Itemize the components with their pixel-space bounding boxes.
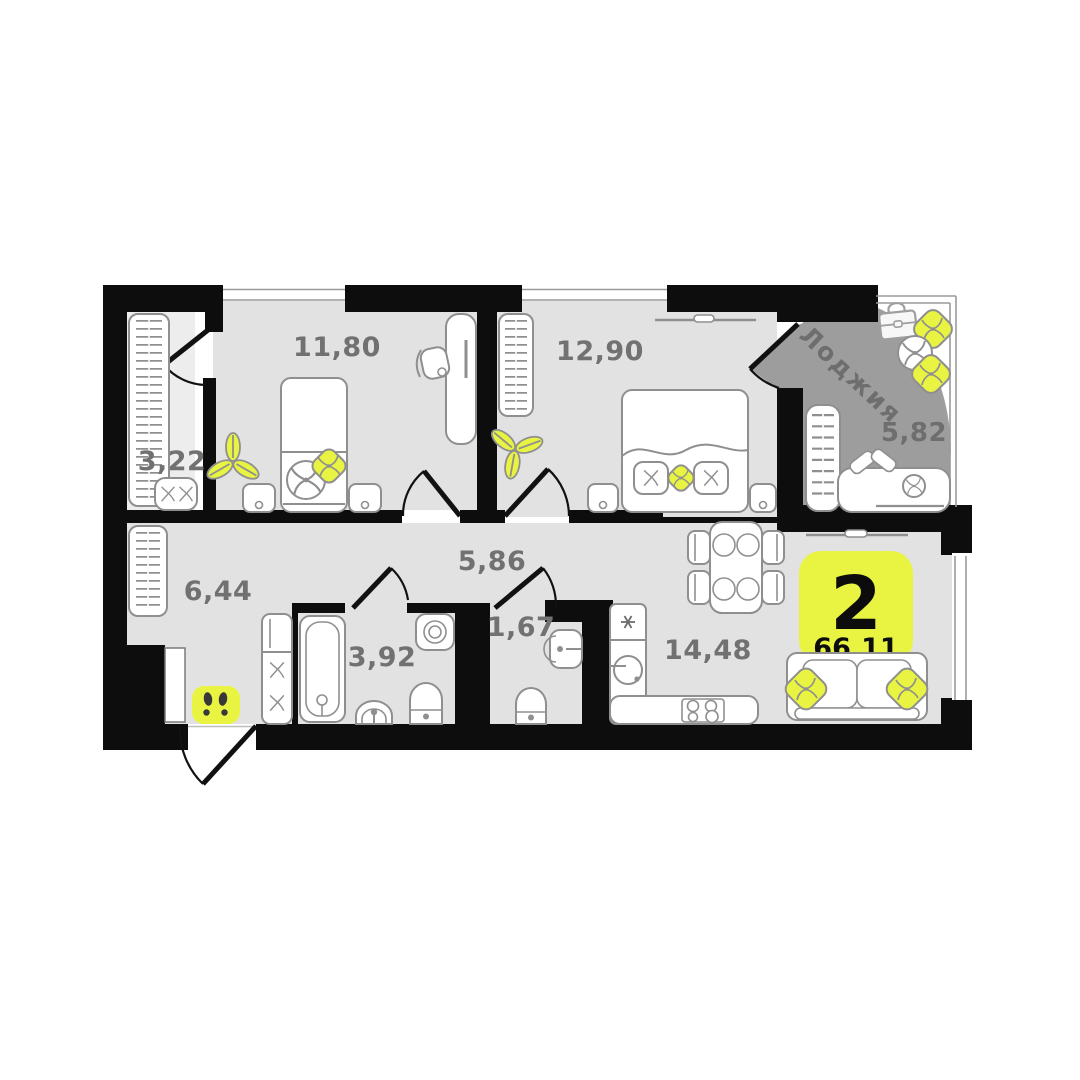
- single-bed-icon: [281, 378, 349, 512]
- nightstand-icon: [588, 484, 618, 512]
- dining-chair-icon: [688, 571, 710, 604]
- bathtub-icon: [300, 616, 345, 722]
- window-bedroom2: [522, 285, 667, 301]
- window-living: [952, 553, 974, 700]
- nightstand-icon: [349, 484, 381, 512]
- wall-bath-top-right: [407, 603, 455, 613]
- wall-loggia-divider: [777, 388, 803, 505]
- wardrobe-icon-bedroom2: [499, 314, 533, 416]
- wall-bottom-left: [103, 724, 188, 750]
- area-label-closet: 3,22: [138, 446, 207, 477]
- entrance-door: [180, 726, 256, 784]
- area-label-corridor: 5,86: [458, 546, 527, 577]
- pouf-icon-closet: [155, 478, 197, 510]
- area-label-kitchen: 14,48: [664, 635, 752, 666]
- wall-bath-wc: [455, 603, 490, 724]
- area-label-bathroom: 3,92: [348, 642, 417, 673]
- desk-icon: [446, 314, 476, 444]
- toilet-icon-wc: [516, 688, 546, 724]
- wall-right-pier-top: [941, 505, 972, 555]
- nightstand-icon: [243, 484, 275, 512]
- floor-plan: 2 66,11 3,22 11,80 12,90 Лоджия 5,82 6,4…: [0, 0, 1080, 1080]
- floor-plan-page: { "plan": { "type": "apartment-floor-pla…: [0, 0, 1080, 1080]
- area-label-bedroom1: 11,80: [293, 332, 381, 363]
- wall-bottom: [256, 724, 972, 750]
- area-label-hallway: 6,44: [184, 576, 253, 607]
- dining-chair-icon: [762, 571, 784, 604]
- shaft: [165, 648, 185, 722]
- wall-wc-kitchen: [582, 613, 613, 724]
- stove-icon: [682, 699, 724, 723]
- double-bed-icon: [622, 390, 748, 512]
- wall-closet-notch: [205, 285, 223, 332]
- area-label-loggia: 5,82: [881, 418, 947, 448]
- apartment-badge: 2 66,11: [799, 551, 913, 664]
- toilet-icon-bathroom: [410, 683, 442, 724]
- wall-bath-top-left: [292, 603, 345, 613]
- washing-machine-icon: [416, 614, 454, 650]
- dining-chair-icon: [762, 531, 784, 564]
- sofa-icon: [782, 653, 931, 720]
- wardrobe-icon-hallway: [129, 526, 167, 616]
- footprints-badge: [192, 686, 240, 724]
- dining-table-icon: [710, 522, 762, 613]
- sink-icon-bathroom: [356, 701, 392, 724]
- wall-bedroom-divider: [477, 285, 497, 523]
- linen-cabinet-icon: [262, 614, 292, 724]
- window-bedroom1: [223, 285, 345, 301]
- nightstand-icon: [750, 484, 776, 512]
- dining-chair-icon: [688, 531, 710, 564]
- area-label-bedroom2: 12,90: [556, 336, 644, 367]
- wall-closet-divider: [203, 378, 216, 510]
- area-label-wc: 1,67: [487, 612, 556, 643]
- wall-mid-stub: [460, 510, 505, 523]
- wall-top-pier3-lip: [777, 285, 878, 322]
